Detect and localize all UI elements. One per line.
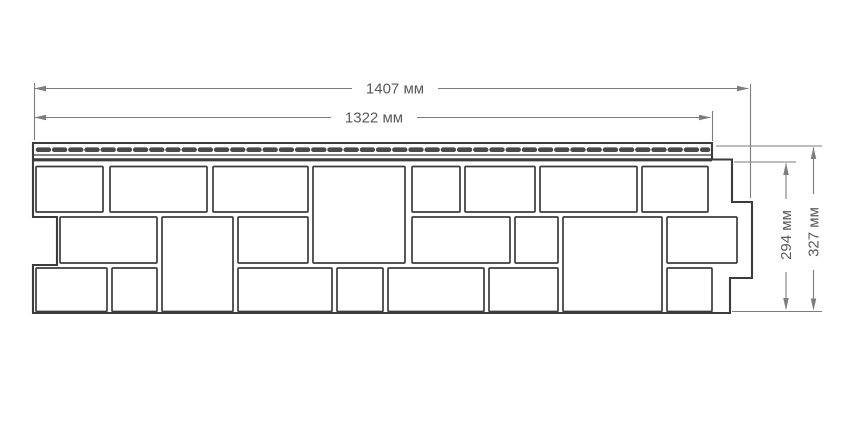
stone-block xyxy=(112,268,157,312)
stone-block xyxy=(515,217,558,263)
panel-drawing-canvas: 1407 мм 1322 мм 294 мм xyxy=(0,0,850,425)
stone-block xyxy=(110,167,207,213)
stone-block xyxy=(667,217,737,263)
stone-block-tall xyxy=(563,217,662,312)
arrowhead-right xyxy=(737,86,749,92)
arrowhead-right xyxy=(699,115,711,121)
arrowhead-down xyxy=(783,298,789,310)
stone-block xyxy=(412,167,460,213)
dimension-label-full-height: 327 мм xyxy=(806,207,823,257)
stone-block xyxy=(238,217,308,263)
panel-body xyxy=(33,143,752,313)
dimension-label-outer-width: 1407 мм xyxy=(366,81,424,98)
stone-block xyxy=(60,217,157,263)
stone-block xyxy=(540,167,637,213)
stone-block xyxy=(238,268,332,312)
stone-block xyxy=(36,167,103,213)
stone-block xyxy=(667,268,712,312)
stone-block xyxy=(412,217,510,263)
stone-block xyxy=(36,268,107,312)
nail-strip xyxy=(33,150,712,160)
stone-block xyxy=(642,167,708,213)
arrowhead-up xyxy=(783,163,789,175)
stone-block xyxy=(213,167,308,213)
stone-block xyxy=(489,268,558,312)
arrowhead-down xyxy=(811,299,817,311)
stone-block xyxy=(465,167,535,213)
stone-block-tall xyxy=(313,167,405,264)
facade-panel-diagram: 1407 мм 1322 мм 294 мм xyxy=(0,0,850,425)
stone-block-tall xyxy=(162,217,233,312)
dimension-label-strip-width: 1322 мм xyxy=(345,110,403,127)
arrowhead-up xyxy=(811,147,817,159)
arrowhead-left xyxy=(34,86,46,92)
stone-block xyxy=(337,268,383,312)
dimension-strip-width: 1322 мм xyxy=(34,110,713,142)
dimension-label-panel-height: 294 мм xyxy=(778,210,795,260)
stone-block xyxy=(388,268,484,312)
arrowhead-left xyxy=(34,115,46,121)
